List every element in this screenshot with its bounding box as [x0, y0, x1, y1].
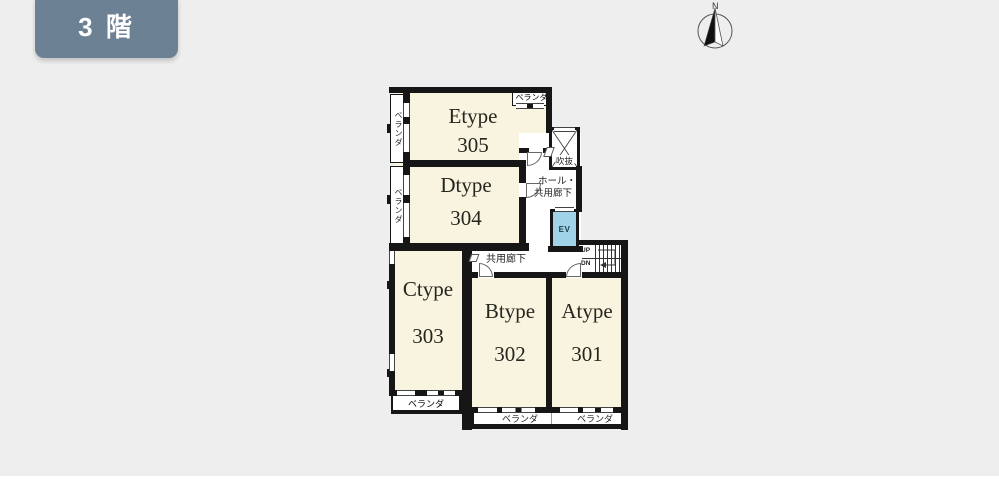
room-number: 305 — [398, 133, 548, 158]
window — [389, 354, 395, 371]
wall — [576, 166, 582, 212]
stairs-down-label: DN — [581, 260, 590, 267]
window — [502, 407, 535, 413]
wall — [389, 87, 552, 93]
room-fill-303 — [389, 245, 466, 397]
window — [560, 407, 578, 413]
balcony-divider — [551, 412, 552, 424]
floorplan-page: 3 階 N ベランダ ベランダ ベランダ 吹抜 EV ベランダ ベランダ — [0, 0, 999, 484]
stair-direction-arrow — [590, 244, 624, 272]
window — [583, 407, 613, 413]
compass-north-label: N — [712, 1, 719, 11]
footer-strip — [0, 476, 999, 484]
hall-label-line2: 共用廊下 — [534, 189, 572, 199]
room-type-label: Dtype — [396, 173, 536, 198]
pillar — [387, 195, 391, 204]
elevator-label: EV — [559, 225, 571, 234]
balcony-label: ベランダ — [408, 397, 444, 410]
balcony-ctype: ベランダ — [391, 394, 463, 414]
hall-label-line1: ホール・ — [538, 177, 576, 187]
elevator-box: EV — [550, 209, 579, 249]
room-number: 301 — [550, 342, 624, 367]
room-number: 304 — [396, 206, 536, 231]
wall — [548, 246, 583, 252]
window — [554, 127, 575, 132]
room-type-label: Atype — [550, 299, 624, 324]
window — [478, 407, 497, 413]
void-label: 吹抜 — [555, 155, 574, 167]
balcony-label: ベランダ — [577, 415, 613, 425]
window — [427, 390, 455, 396]
pillar — [387, 124, 391, 133]
compass-icon: N — [692, 0, 740, 54]
stairs-up-label: UP — [581, 247, 590, 254]
room-number: 303 — [392, 324, 464, 349]
room-type-label: Etype — [398, 104, 548, 129]
corridor-label: 共用廊下 — [486, 254, 526, 265]
window — [397, 390, 415, 396]
floor-badge-label: 3 階 — [78, 7, 135, 44]
room-number: 302 — [474, 342, 546, 367]
window — [555, 207, 574, 212]
window — [389, 251, 395, 264]
room-type-label: Btype — [474, 299, 546, 324]
floor-badge: 3 階 — [35, 0, 178, 58]
room-type-label: Ctype — [392, 277, 464, 302]
wall — [389, 243, 529, 251]
balcony-label: ベランダ — [502, 415, 538, 425]
wall — [403, 160, 526, 167]
balcony-label: ベランダ — [516, 92, 548, 103]
